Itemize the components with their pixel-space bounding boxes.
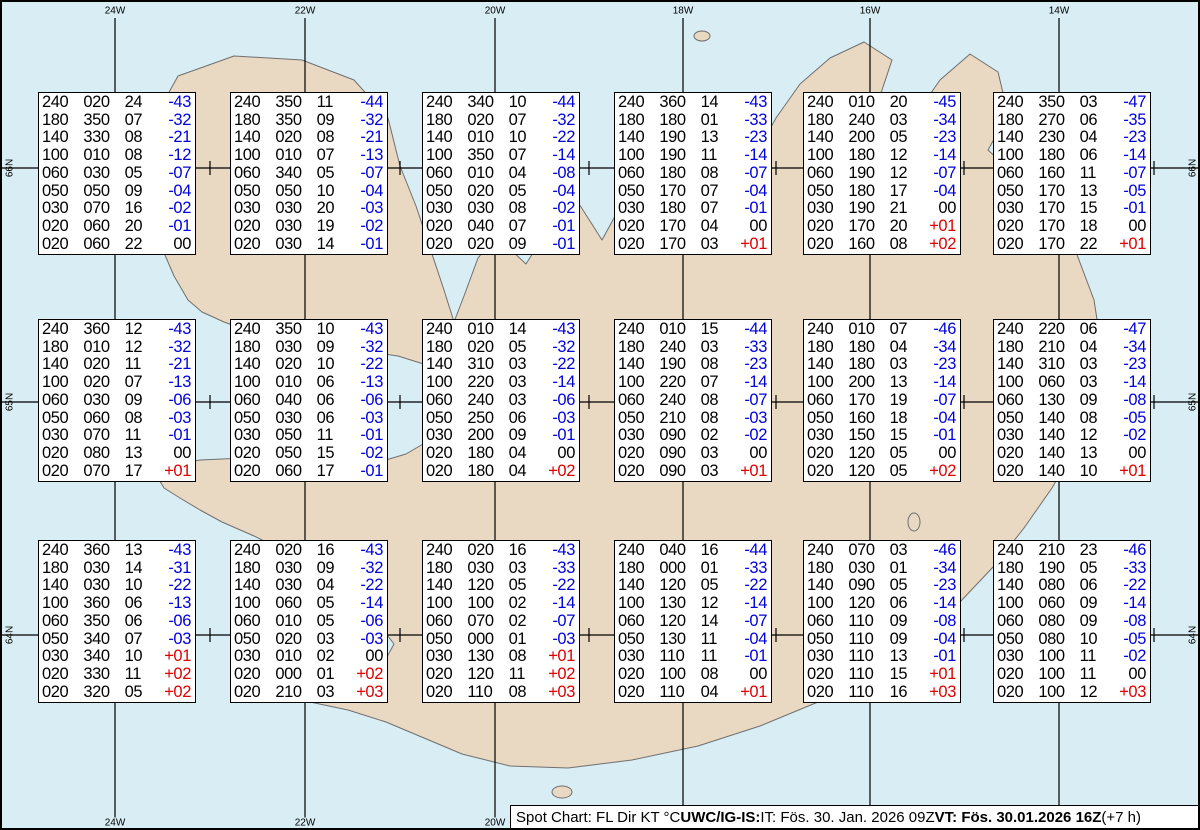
temp-value: -23	[732, 356, 767, 373]
dir-value: 060	[275, 595, 308, 612]
fl-value: 060	[234, 613, 267, 630]
dir-value: 050	[275, 183, 308, 200]
fl-value: 140	[426, 129, 459, 146]
kt-value: 10	[317, 356, 340, 373]
fl-value: 240	[618, 542, 651, 559]
dir-value: 170	[848, 218, 881, 235]
dir-value: 030	[83, 392, 116, 409]
kt-value: 06	[1080, 147, 1103, 164]
kt-value: 07	[509, 112, 532, 129]
temp-value: -33	[1111, 560, 1146, 577]
spot-row: 03009002-02	[618, 427, 767, 444]
dir-value: 010	[848, 94, 881, 111]
kt-value: 03	[701, 236, 724, 253]
spot-row: 02006020-01	[42, 218, 191, 235]
temp-value: -14	[540, 147, 575, 164]
kt-value: 08	[701, 392, 724, 409]
spot-row: 10020013-14	[807, 374, 956, 391]
dir-value: 250	[467, 410, 500, 427]
dir-value: 020	[467, 112, 500, 129]
temp-value: -22	[540, 356, 575, 373]
dir-value: 060	[1038, 374, 1071, 391]
temp-value: -07	[921, 165, 956, 182]
kt-value: 05	[509, 339, 532, 356]
kt-value: 01	[317, 666, 340, 683]
dir-value: 120	[467, 666, 500, 683]
temp-value: -32	[348, 560, 383, 577]
spot-row: 02012005+02	[807, 463, 956, 480]
fl-value: 020	[234, 218, 267, 235]
kt-value: 04	[701, 684, 724, 701]
fl-value: 180	[426, 339, 459, 356]
spot-row: 06035006-06	[42, 613, 191, 630]
temp-value: -04	[156, 183, 191, 200]
fl-value: 240	[618, 321, 651, 338]
dir-value: 060	[275, 463, 308, 480]
fl-value: 180	[42, 112, 75, 129]
spot-row: 18003001-34	[807, 560, 956, 577]
temp-value: -22	[348, 356, 383, 373]
dir-value: 360	[83, 595, 116, 612]
temp-value: -32	[156, 112, 191, 129]
spot-row: 02011008+03	[426, 684, 575, 701]
fl-value: 240	[807, 542, 840, 559]
fl-value: 020	[997, 445, 1030, 462]
spot-row: 03018007-01	[618, 200, 767, 217]
fl-value: 050	[997, 631, 1030, 648]
spot-row: 24007003-46	[807, 542, 956, 559]
kt-value: 08	[509, 200, 532, 217]
temp-value: -01	[1111, 200, 1146, 217]
dir-value: 230	[1038, 129, 1071, 146]
kt-value: 10	[1080, 463, 1103, 480]
fl-value: 020	[997, 236, 1030, 253]
kt-value: 22	[125, 236, 148, 253]
spot-row: 10018012-14	[807, 147, 956, 164]
spot-row: 14012005-22	[618, 577, 767, 594]
kt-value: 09	[125, 183, 148, 200]
spot-row: 02016008+02	[807, 236, 956, 253]
kt-value: 09	[509, 236, 532, 253]
spot-row: 06024008-07	[618, 392, 767, 409]
dir-value: 030	[275, 236, 308, 253]
fl-value: 020	[42, 445, 75, 462]
temp-value: -33	[732, 560, 767, 577]
fl-value: 020	[426, 445, 459, 462]
kt-value: 08	[125, 129, 148, 146]
kt-value: 11	[125, 356, 148, 373]
spot-row: 18018001-33	[618, 112, 767, 129]
fl-value: 180	[234, 339, 267, 356]
fl-value: 030	[997, 648, 1030, 665]
temp-value: -01	[732, 648, 767, 665]
temp-value: -01	[540, 427, 575, 444]
kt-value: 05	[701, 577, 724, 594]
dir-value: 350	[83, 613, 116, 630]
fl-value: 180	[997, 339, 1030, 356]
kt-value: 12	[125, 321, 148, 338]
spot-row: 03011011-01	[618, 648, 767, 665]
kt-value: 24	[125, 94, 148, 111]
dir-value: 100	[467, 595, 500, 612]
kt-value: 10	[509, 129, 532, 146]
kt-value: 11	[125, 427, 148, 444]
fl-value: 020	[807, 684, 840, 701]
spot-box-r1c1: 24002024-4318035007-3214033008-211000100…	[38, 92, 196, 255]
dir-value: 170	[659, 236, 692, 253]
fl-value: 050	[997, 410, 1030, 427]
kt-value: 05	[317, 165, 340, 182]
fl-value: 020	[618, 666, 651, 683]
fl-value: 140	[234, 129, 267, 146]
fl-value: 140	[426, 356, 459, 373]
kt-value: 06	[125, 613, 148, 630]
temp-value: -07	[732, 392, 767, 409]
fl-value: 020	[807, 445, 840, 462]
spot-row: 14008006-22	[997, 577, 1146, 594]
dir-value: 190	[848, 200, 881, 217]
spot-row: 0201200500	[807, 445, 956, 462]
spot-row: 0201000800	[618, 666, 767, 683]
temp-value: -08	[1111, 613, 1146, 630]
fl-value: 060	[234, 392, 267, 409]
spot-row: 14019013-23	[618, 129, 767, 146]
fl-value: 100	[807, 147, 840, 164]
temp-value: -13	[156, 374, 191, 391]
dir-value: 220	[467, 374, 500, 391]
dir-value: 000	[275, 666, 308, 683]
spot-row: 0301902100	[807, 200, 956, 217]
temp-value: +01	[156, 648, 191, 665]
kt-value: 11	[1080, 666, 1103, 683]
temp-value: +02	[156, 666, 191, 683]
kt-value: 03	[1080, 374, 1103, 391]
fl-value: 050	[618, 631, 651, 648]
temp-value: -01	[156, 427, 191, 444]
fl-value: 060	[997, 613, 1030, 630]
spot-row: 02032005+02	[42, 684, 191, 701]
kt-value: 15	[701, 321, 724, 338]
spot-box-r1c4: 24036014-4318018001-3314019013-231001901…	[614, 92, 772, 255]
spot-row: 10012006-14	[807, 595, 956, 612]
lat-label-left: 65N	[5, 393, 16, 411]
kt-value: 07	[890, 321, 913, 338]
temp-value: -08	[540, 165, 575, 182]
spot-row: 03005011-01	[234, 427, 383, 444]
dir-value: 030	[275, 560, 308, 577]
dir-value: 120	[659, 613, 692, 630]
spot-row: 10002007-13	[42, 374, 191, 391]
dir-value: 020	[467, 183, 500, 200]
temp-value: -13	[348, 147, 383, 164]
fl-value: 180	[807, 339, 840, 356]
temp-value: -04	[732, 631, 767, 648]
fl-value: 140	[807, 356, 840, 373]
kt-value: 08	[509, 648, 532, 665]
kt-value: 20	[890, 218, 913, 235]
kt-value: 07	[317, 147, 340, 164]
dir-value: 350	[275, 94, 308, 111]
kt-value: 08	[125, 410, 148, 427]
kt-value: 05	[317, 613, 340, 630]
dir-value: 090	[659, 445, 692, 462]
spot-row: 0200801300	[42, 445, 191, 462]
spot-row: 06001004-08	[426, 165, 575, 182]
fl-value: 050	[426, 410, 459, 427]
fl-value: 060	[426, 392, 459, 409]
spot-row: 18003014-31	[42, 560, 191, 577]
fl-value: 060	[42, 613, 75, 630]
spot-box-r1c2: 24035011-4418035009-3214002008-211000100…	[230, 92, 388, 255]
kt-value: 07	[125, 112, 148, 129]
kt-value: 14	[701, 613, 724, 630]
temp-value: +03	[348, 684, 383, 701]
spot-row: 06016011-07	[997, 165, 1146, 182]
fl-value: 140	[618, 577, 651, 594]
fl-value: 140	[997, 129, 1030, 146]
temp-value: -44	[540, 94, 575, 111]
fl-value: 100	[42, 374, 75, 391]
temp-value: -43	[156, 94, 191, 111]
spot-row: 05018017-04	[807, 183, 956, 200]
dir-value: 180	[659, 112, 692, 129]
spot-box-r3c3: 24002016-4318003003-3314012005-221001000…	[422, 540, 580, 703]
spot-row: 0300100200	[234, 648, 383, 665]
dir-value: 050	[83, 183, 116, 200]
fl-value: 030	[807, 200, 840, 217]
fl-value: 240	[42, 542, 75, 559]
fl-value: 140	[618, 129, 651, 146]
spot-row: 06034005-07	[234, 165, 383, 182]
dir-value: 020	[467, 339, 500, 356]
kt-value: 20	[317, 200, 340, 217]
spot-row: 18001012-32	[42, 339, 191, 356]
dir-value: 200	[848, 129, 881, 146]
temp-value: 00	[921, 445, 956, 462]
fl-value: 240	[618, 94, 651, 111]
spot-row: 06017019-07	[807, 392, 956, 409]
fl-value: 180	[42, 560, 75, 577]
fl-value: 100	[618, 595, 651, 612]
spot-row: 03017015-01	[997, 200, 1146, 217]
fl-value: 100	[618, 147, 651, 164]
temp-value: 00	[1111, 666, 1146, 683]
fl-value: 140	[618, 356, 651, 373]
fl-value: 180	[42, 339, 75, 356]
lon-label-top: 16W	[858, 6, 883, 17]
spot-row: 05021008-03	[618, 410, 767, 427]
temp-value: -03	[156, 631, 191, 648]
kt-value: 11	[509, 666, 532, 683]
temp-value: -43	[540, 542, 575, 559]
temp-value: -14	[540, 595, 575, 612]
kt-value: 12	[125, 339, 148, 356]
kt-value: 06	[1080, 112, 1103, 129]
dir-value: 110	[659, 648, 692, 665]
dir-value: 000	[467, 631, 500, 648]
kt-value: 02	[509, 595, 532, 612]
spot-row: 02009003+01	[618, 463, 767, 480]
temp-value: -32	[156, 339, 191, 356]
spot-chart: 24002024-4318035007-3214033008-211000100…	[0, 0, 1200, 830]
spot-row: 05017007-04	[618, 183, 767, 200]
kt-value: 16	[509, 542, 532, 559]
spot-row: 0201701800	[997, 218, 1146, 235]
spot-row: 10022007-14	[618, 374, 767, 391]
spot-row: 24002016-43	[234, 542, 383, 559]
dir-value: 110	[848, 666, 881, 683]
dir-value: 340	[83, 631, 116, 648]
fl-value: 020	[807, 463, 840, 480]
spot-row: 24001007-46	[807, 321, 956, 338]
spot-row: 0201800400	[426, 445, 575, 462]
dir-value: 000	[659, 560, 692, 577]
fl-value: 100	[807, 374, 840, 391]
fl-value: 100	[997, 595, 1030, 612]
temp-value: -01	[921, 427, 956, 444]
temp-value: -23	[921, 356, 956, 373]
kt-value: 08	[701, 410, 724, 427]
dir-value: 210	[275, 684, 308, 701]
dir-value: 030	[83, 165, 116, 182]
fl-value: 020	[426, 236, 459, 253]
fl-value: 100	[997, 147, 1030, 164]
temp-value: -32	[348, 339, 383, 356]
fl-value: 050	[807, 631, 840, 648]
lat-label-right: 64N	[1188, 626, 1199, 644]
kt-value: 07	[125, 374, 148, 391]
dir-value: 170	[1038, 236, 1071, 253]
spot-row: 24036014-43	[618, 94, 767, 111]
status-text-valid-time: VT: Fös. 30.01.2026 16Z	[935, 809, 1102, 826]
temp-value: -14	[1111, 595, 1146, 612]
kt-value: 10	[317, 183, 340, 200]
spot-box-r3c1: 24036013-4318003014-3114003010-221003600…	[38, 540, 196, 703]
spot-row: 14031003-23	[997, 356, 1146, 373]
spot-row: 10013012-14	[618, 595, 767, 612]
spot-row: 03013008+01	[426, 648, 575, 665]
temp-value: -47	[1111, 94, 1146, 111]
fl-value: 140	[42, 129, 75, 146]
dir-value: 080	[83, 445, 116, 462]
kt-value: 05	[890, 445, 913, 462]
fl-value: 140	[807, 129, 840, 146]
dir-value: 110	[467, 684, 500, 701]
spot-row: 06004006-06	[234, 392, 383, 409]
spot-row: 18003003-33	[426, 560, 575, 577]
fl-value: 050	[807, 183, 840, 200]
kt-value: 06	[125, 595, 148, 612]
temp-value: -33	[732, 339, 767, 356]
temp-value: -01	[348, 427, 383, 444]
fl-value: 060	[234, 165, 267, 182]
spot-row: 24035011-44	[234, 94, 383, 111]
temp-value: -06	[156, 392, 191, 409]
kt-value: 11	[317, 94, 340, 111]
temp-value: -34	[921, 339, 956, 356]
dir-value: 010	[83, 147, 116, 164]
lat-label-right: 66N	[1188, 159, 1199, 177]
dir-value: 010	[467, 129, 500, 146]
fl-value: 140	[42, 577, 75, 594]
fl-value: 240	[807, 321, 840, 338]
fl-value: 020	[42, 666, 75, 683]
temp-value: +03	[921, 684, 956, 701]
fl-value: 020	[618, 236, 651, 253]
dir-value: 190	[848, 165, 881, 182]
kt-value: 06	[1080, 577, 1103, 594]
temp-value: -44	[732, 321, 767, 338]
spot-row: 06018008-07	[618, 165, 767, 182]
temp-value: -03	[156, 410, 191, 427]
fl-value: 020	[997, 463, 1030, 480]
kt-value: 11	[125, 666, 148, 683]
kt-value: 07	[701, 183, 724, 200]
temp-value: -14	[921, 595, 956, 612]
spot-row: 14002010-22	[234, 356, 383, 373]
dir-value: 180	[848, 147, 881, 164]
temp-value: -04	[921, 410, 956, 427]
fl-value: 180	[426, 560, 459, 577]
kt-value: 05	[509, 577, 532, 594]
fl-value: 030	[42, 200, 75, 217]
temp-value: -34	[921, 112, 956, 129]
spot-row: 03003008-02	[426, 200, 575, 217]
temp-value: -34	[921, 560, 956, 577]
dir-value: 140	[1038, 427, 1071, 444]
spot-row: 14003004-22	[234, 577, 383, 594]
fl-value: 100	[426, 595, 459, 612]
temp-value: -01	[732, 200, 767, 217]
fl-value: 240	[997, 94, 1030, 111]
spot-row: 18003009-32	[234, 560, 383, 577]
spot-box-r2c1: 24036012-4318001012-3214002011-211000200…	[38, 319, 196, 482]
kt-value: 21	[890, 200, 913, 217]
spot-row: 02003019-02	[234, 218, 383, 235]
dir-value: 100	[1038, 684, 1071, 701]
spot-row: 05011009-04	[807, 631, 956, 648]
dir-value: 210	[659, 410, 692, 427]
spot-row: 14031003-22	[426, 356, 575, 373]
spot-row: 24004016-44	[618, 542, 767, 559]
temp-value: -01	[540, 236, 575, 253]
temp-value: -31	[156, 560, 191, 577]
temp-value: -03	[540, 410, 575, 427]
fl-value: 050	[234, 183, 267, 200]
fl-value: 020	[234, 463, 267, 480]
spot-row: 03015015-01	[807, 427, 956, 444]
fl-value: 240	[426, 321, 459, 338]
dir-value: 010	[275, 613, 308, 630]
temp-value: -02	[348, 445, 383, 462]
temp-value: -34	[1111, 339, 1146, 356]
kt-value: 09	[317, 339, 340, 356]
dir-value: 210	[1038, 542, 1071, 559]
dir-value: 170	[1038, 200, 1071, 217]
fl-value: 030	[42, 427, 75, 444]
temp-value: +01	[156, 463, 191, 480]
kt-value: 06	[317, 392, 340, 409]
kt-value: 12	[890, 165, 913, 182]
fl-value: 020	[807, 218, 840, 235]
lon-label-top: 24W	[103, 6, 128, 17]
fl-value: 140	[234, 577, 267, 594]
dir-value: 140	[1038, 463, 1071, 480]
fl-value: 100	[618, 374, 651, 391]
fl-value: 180	[426, 112, 459, 129]
spot-row: 14023004-23	[997, 129, 1146, 146]
fl-value: 180	[234, 560, 267, 577]
